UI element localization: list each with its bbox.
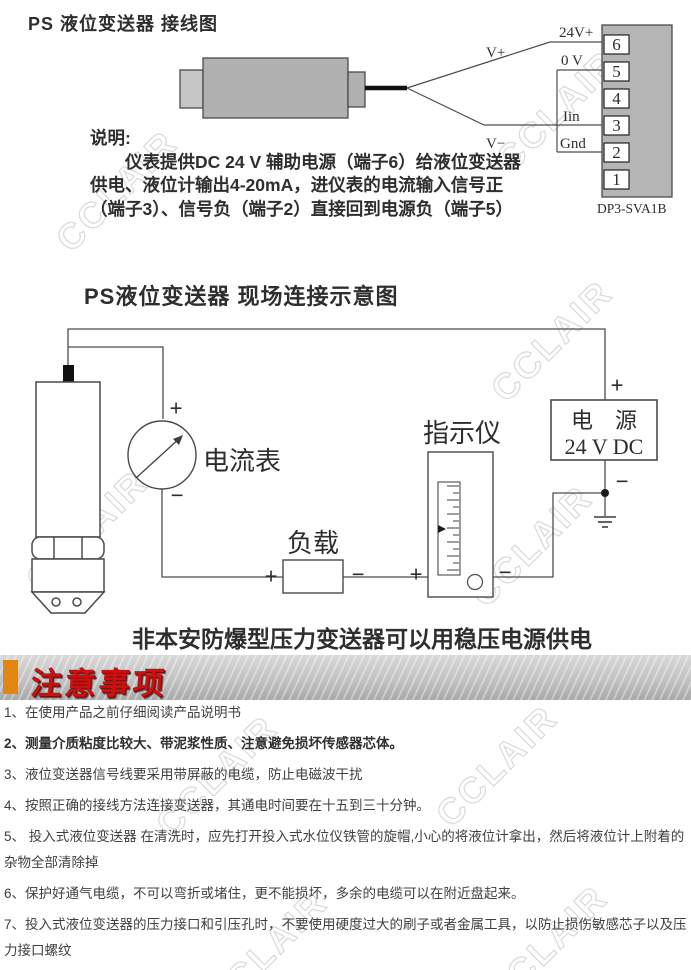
terminal-number-5: 5: [612, 62, 621, 81]
indicator-plus: +: [409, 562, 422, 587]
transmitter-illustration: [180, 58, 365, 118]
notices-header: 注意事项: [29, 658, 169, 703]
load-minus: −: [351, 562, 364, 587]
notice-item-6: 6、保护好通气电缆，不可以弯折或堵住，更不能损坏，多余的电缆可以在附近盘起来。: [4, 881, 687, 907]
notices-list: 1、在使用产品之前仔细阅读产品说明书 2、测量介质粘度比较大、带泥浆性质、注意避…: [4, 700, 687, 969]
load-box: [283, 560, 343, 593]
ammeter-label: 电流表: [203, 447, 281, 476]
notice-item-4: 4、按照正确的接线方法连接变送器，其通电时间要在十五到三十分钟。: [4, 793, 687, 819]
wiring-explanation: 说明: 仪表提供DC 24 V 辅助电源（端子6）给液位变送器 供电、液位计输出…: [90, 127, 595, 221]
ground-symbol: [594, 517, 616, 527]
terminal-block-model: DP3-SVA1B: [597, 201, 667, 216]
label-24v: 24V+: [559, 25, 593, 41]
banner-orange-tab: [3, 660, 18, 694]
power-plus: +: [610, 373, 623, 398]
junction-dot: [601, 489, 609, 497]
indicator-minus: −: [498, 560, 511, 585]
ammeter: [128, 421, 196, 489]
terminal-number-1: 1: [612, 170, 621, 189]
load-label: 负载: [287, 529, 339, 558]
terminal-number-4: 4: [612, 89, 621, 108]
load-plus: +: [264, 564, 277, 589]
indicator-instrument: [428, 452, 493, 597]
power-minus: −: [615, 469, 628, 494]
terminal-number-6: 6: [612, 35, 621, 54]
manual-page: CCLAIR CCLAIR CCLAIR CCLAIR CCLAIR CCLAI…: [0, 0, 691, 970]
power-label-line2: 24 V DC: [565, 434, 644, 459]
notice-item-2: 2、测量介质粘度比较大、带泥浆性质、注意避免损坏传感器芯体。: [4, 731, 687, 757]
label-iin: Iin: [563, 109, 580, 125]
label-0v: 0 V: [561, 53, 583, 69]
field-note: 非本安防爆型压力变送器可以用稳压电源供电: [132, 620, 592, 654]
notice-item-7: 7、投入式液位变送器的压力接口和引压孔时，不要使用硬度过大的刷子或者金属工具，以…: [4, 912, 687, 964]
label-vplus: V+: [486, 45, 505, 61]
field-connection-diagram: + − 电流表 负载 + − 指示仪 + − 电: [0, 240, 691, 660]
power-label-line1: 电 源: [571, 408, 637, 433]
ammeter-minus: −: [170, 483, 183, 508]
notice-item-1: 1、在使用产品之前仔细阅读产品说明书: [4, 700, 687, 726]
notices-banner: 注意事项: [0, 655, 691, 700]
terminal-number-3: 3: [612, 116, 621, 135]
ammeter-plus: +: [169, 396, 182, 421]
terminal-number-2: 2: [612, 143, 621, 162]
indicator-label: 指示仪: [423, 419, 501, 448]
notice-item-3: 3、液位变送器信号线要采用带屏蔽的电缆，防止电磁波干扰: [4, 762, 687, 788]
level-sensor: [32, 365, 104, 613]
notice-item-5: 5、 投入式液位变送器 在清洗时，应先打开投入式水位仪铁管的旋帽,小心的将液位计…: [4, 824, 687, 876]
